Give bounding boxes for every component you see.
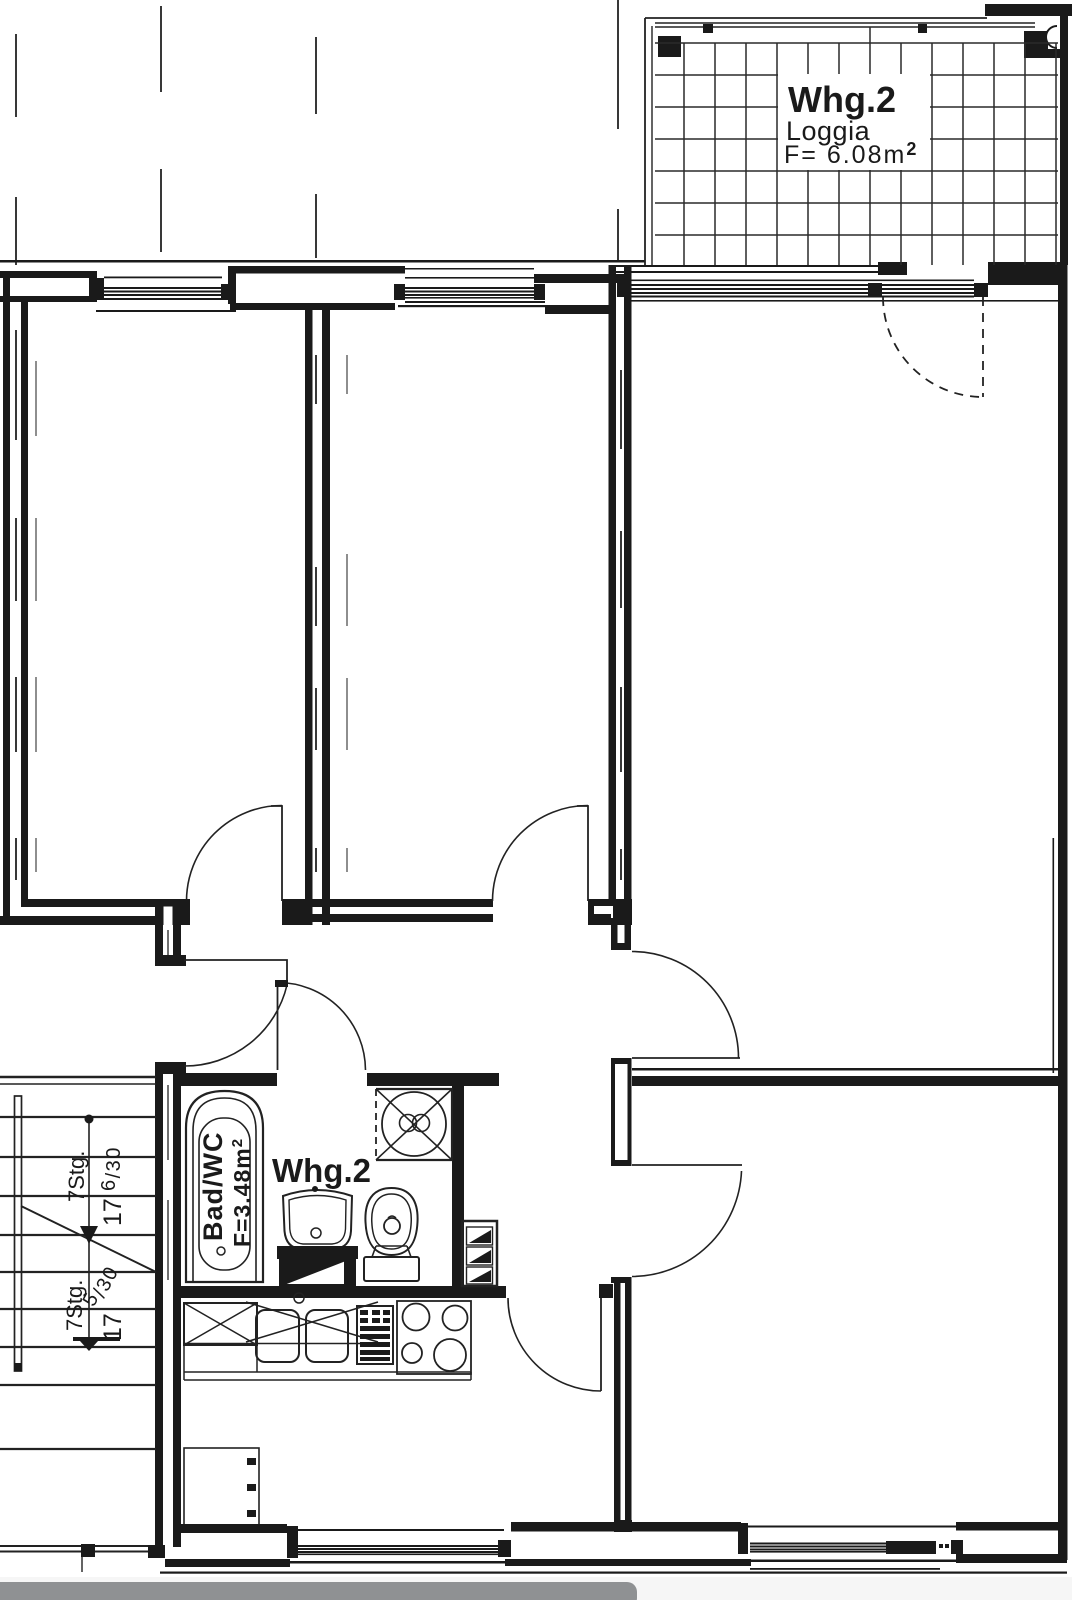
svg-text:F= 6.08m2: F= 6.08m2 [784,139,918,169]
svg-text:Bad/WC: Bad/WC [198,1132,228,1242]
svg-text:Whg.2: Whg.2 [788,79,896,120]
svg-text:Whg.2: Whg.2 [272,1152,371,1189]
svg-text:17: 17 [99,1198,127,1226]
svg-text:7Stg.: 7Stg. [62,1280,87,1331]
svg-text:17: 17 [99,1313,127,1341]
svg-text:7Stg.: 7Stg. [64,1151,89,1202]
svg-text:F=3.48m2: F=3.48m2 [229,1138,255,1247]
